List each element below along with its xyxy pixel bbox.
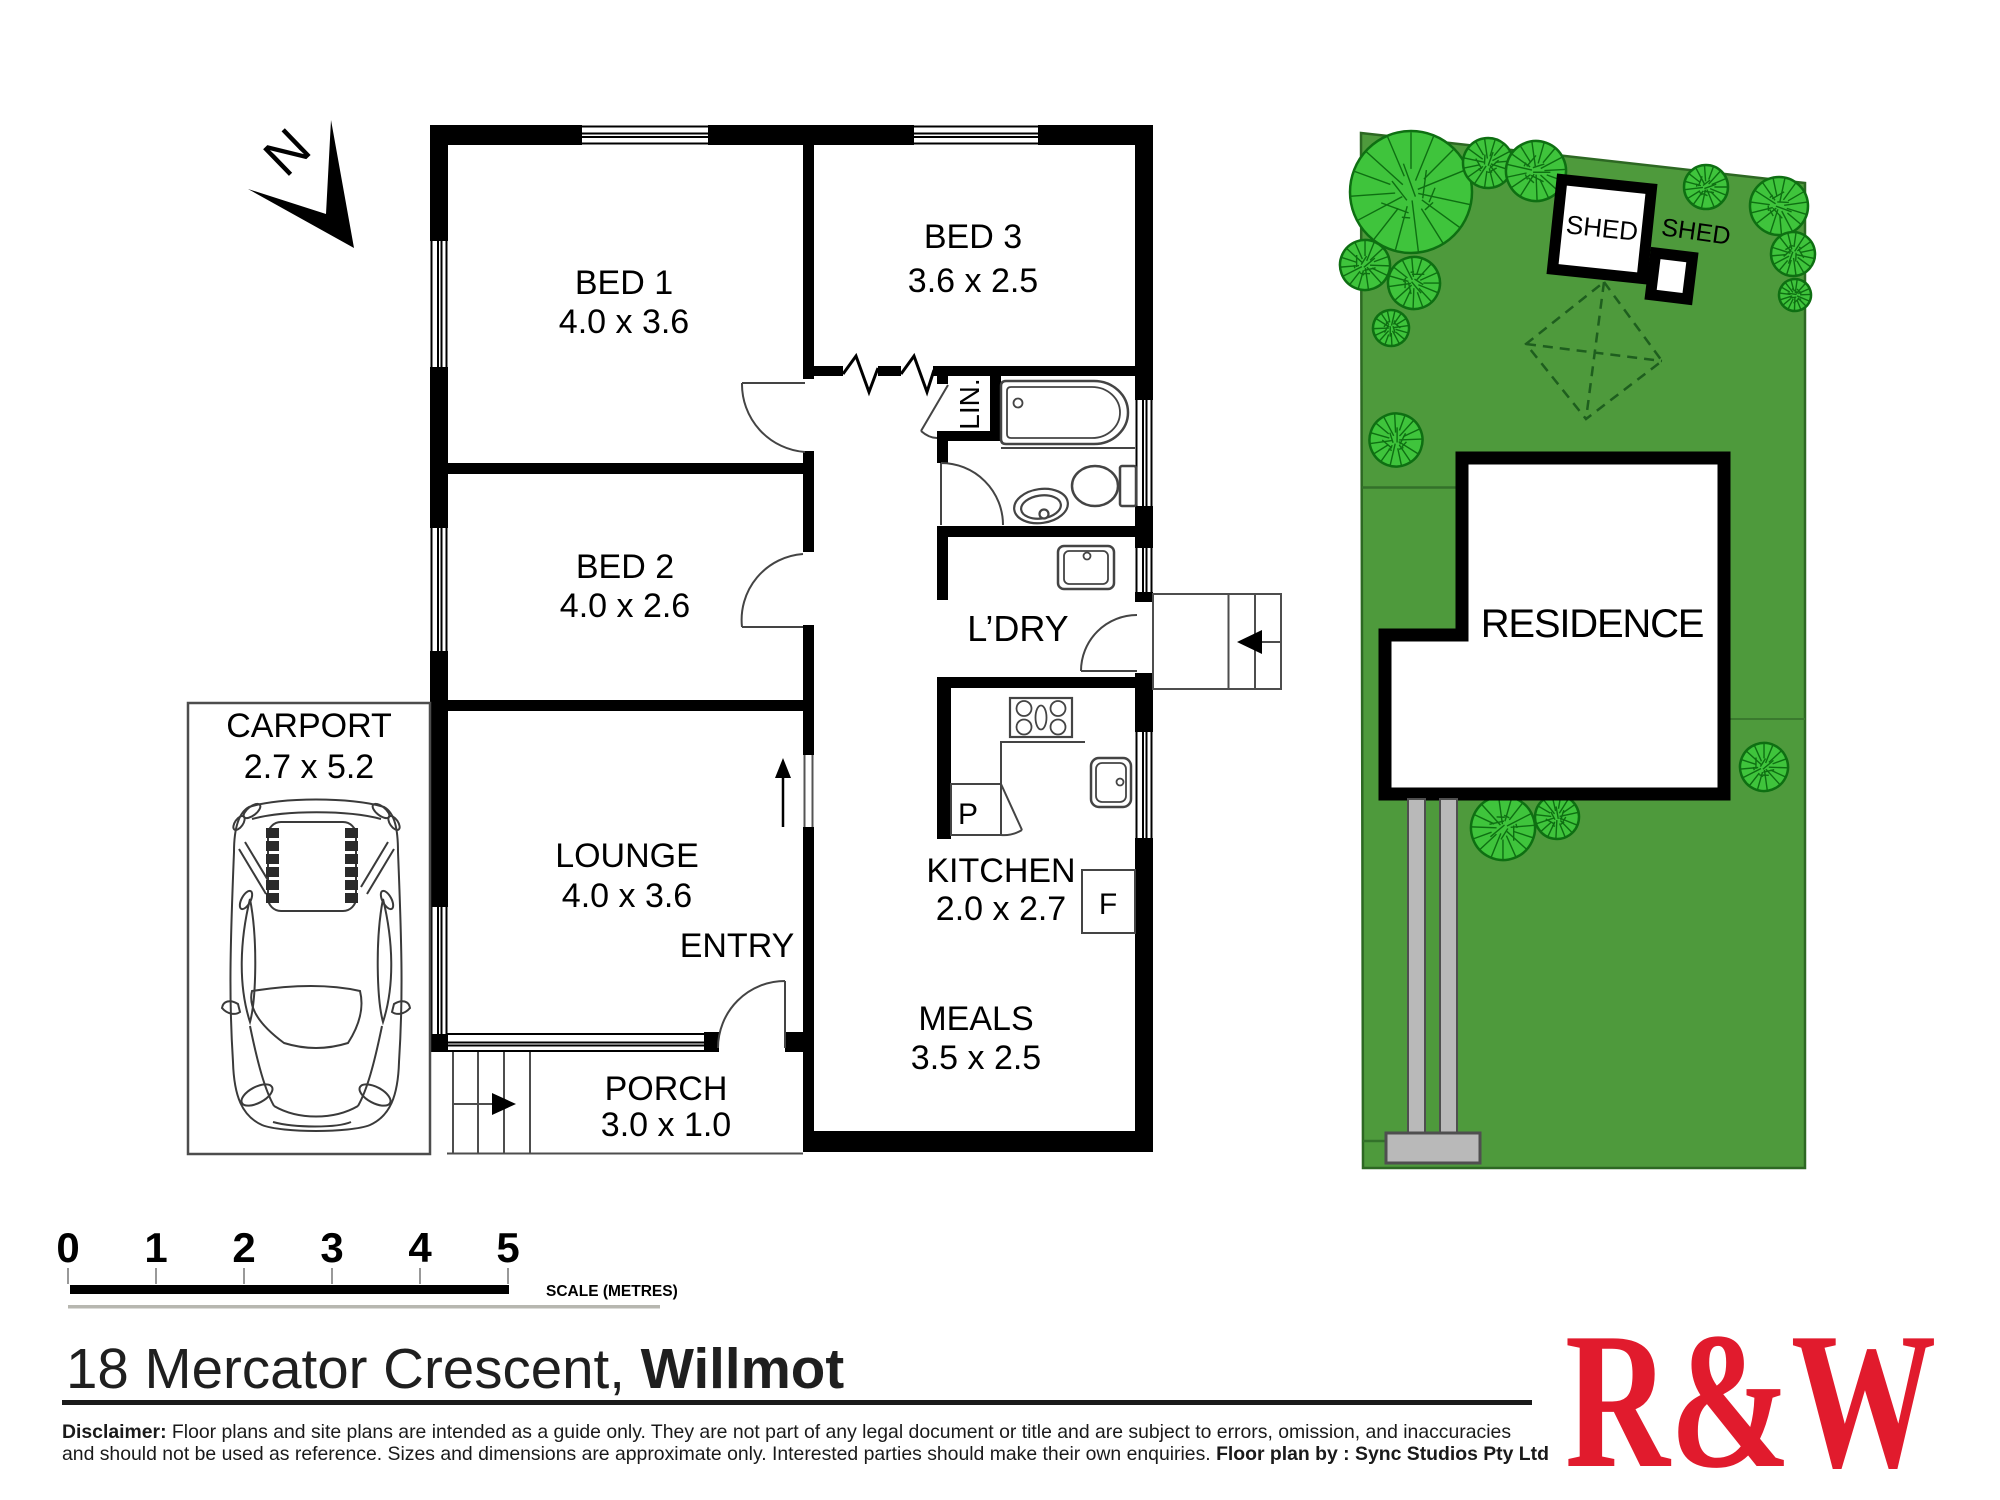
svg-text:3.6 x 2.5: 3.6 x 2.5 — [908, 262, 1038, 300]
svg-text:BED 2: BED 2 — [576, 548, 674, 586]
svg-text:5: 5 — [496, 1224, 519, 1271]
svg-text:LIN.: LIN. — [954, 378, 985, 429]
svg-text:F: F — [1099, 888, 1117, 921]
svg-text:2.7 x 5.2: 2.7 x 5.2 — [244, 748, 374, 786]
svg-text:R&W: R&W — [1565, 1294, 1936, 1500]
svg-text:MEALS: MEALS — [918, 1000, 1033, 1038]
svg-text:3.0 x 1.0: 3.0 x 1.0 — [601, 1106, 731, 1144]
svg-text:1: 1 — [144, 1224, 167, 1271]
svg-text:4.0 x 3.6: 4.0 x 3.6 — [559, 303, 689, 341]
svg-text:P: P — [958, 798, 978, 831]
svg-text:CARPORT: CARPORT — [226, 707, 392, 745]
svg-text:3: 3 — [320, 1224, 343, 1271]
svg-text:RESIDENCE: RESIDENCE — [1481, 602, 1704, 646]
svg-text:18 Mercator Crescent, Willmot: 18 Mercator Crescent, Willmot — [66, 1337, 844, 1400]
svg-text:KITCHEN: KITCHEN — [926, 852, 1075, 890]
svg-text:4.0 x 3.6: 4.0 x 3.6 — [562, 877, 692, 915]
svg-text:N: N — [252, 117, 322, 187]
svg-text:2.0 x 2.7: 2.0 x 2.7 — [936, 890, 1066, 928]
svg-text:0: 0 — [56, 1224, 79, 1271]
svg-text:PORCH: PORCH — [605, 1070, 728, 1108]
svg-text:2: 2 — [232, 1224, 255, 1271]
svg-text:L’DRY: L’DRY — [967, 608, 1068, 649]
svg-text:LOUNGE: LOUNGE — [555, 837, 699, 875]
svg-text:4: 4 — [408, 1224, 432, 1271]
svg-text:BED 3: BED 3 — [924, 218, 1022, 256]
svg-text:3.5 x 2.5: 3.5 x 2.5 — [911, 1039, 1041, 1077]
svg-text:BED 1: BED 1 — [575, 264, 673, 302]
svg-text:and should not be used as refe: and should not be used as reference. Siz… — [62, 1443, 1549, 1465]
svg-text:ENTRY: ENTRY — [680, 927, 795, 965]
svg-text:Disclaimer: Floor plans and si: Disclaimer: Floor plans and site plans a… — [62, 1421, 1511, 1443]
svg-text:4.0 x 2.6: 4.0 x 2.6 — [560, 587, 690, 625]
svg-text:SCALE (METRES): SCALE (METRES) — [546, 1283, 678, 1300]
